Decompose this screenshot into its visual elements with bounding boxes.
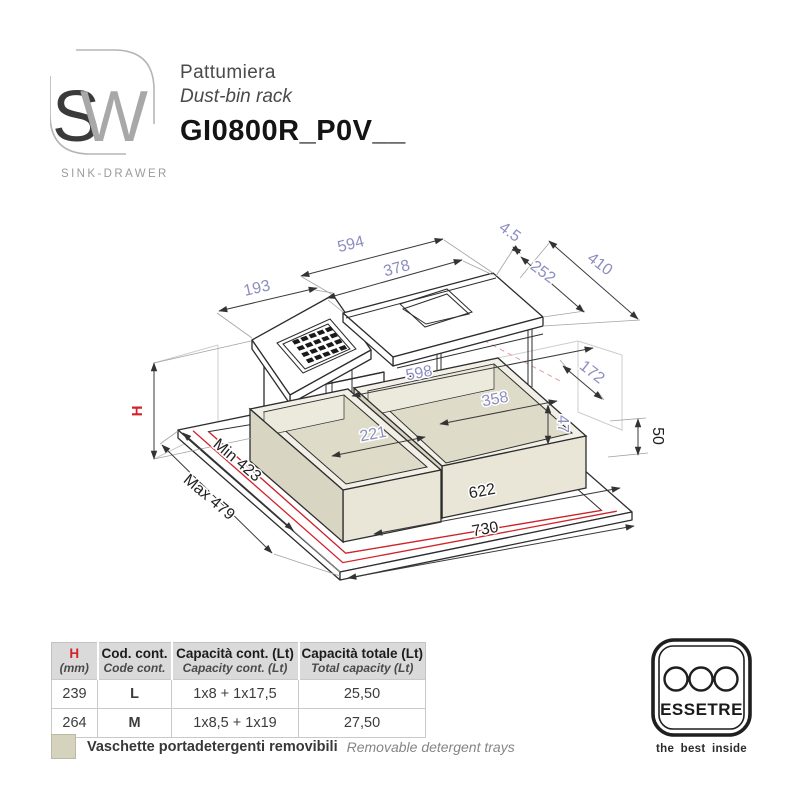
dim-top-depth: 410	[584, 250, 616, 280]
col-header-capacity-cont: Capacità cont. (Lt) Capacity cont. (Lt)	[172, 643, 299, 680]
circle-icon	[690, 668, 713, 691]
circle-icon	[715, 668, 738, 691]
spec-sheet-page: S W SINK-DRAWER Pattumiera Dust-bin rack…	[0, 0, 800, 800]
circle-icon	[665, 668, 688, 691]
dim-side-depth: 172	[576, 358, 608, 388]
dim-top-width: 594	[336, 233, 366, 256]
legend: Vaschette portadetergenti removibili Rem…	[51, 734, 515, 759]
dim-frame-height: 50	[649, 427, 666, 445]
dim-lid-width: 378	[382, 257, 412, 280]
spec-table-header-row: H (mm) Cod. cont. Code cont. Capacità co…	[52, 643, 426, 680]
essetre-logo: ESSETRE the best inside	[645, 628, 760, 758]
legend-text-english: Removable detergent trays	[347, 739, 515, 755]
col-header-code: Cod. cont. Code cont.	[98, 643, 172, 680]
cell-capacity-cont: 1x8 + 1x17,5	[172, 680, 299, 709]
col-header-capacity-total: Capacità totale (Lt) Total capacity (Lt)	[299, 643, 426, 680]
col-header-h: H (mm)	[52, 643, 98, 680]
cell-height: 239	[52, 680, 98, 709]
dim-back-lip: 4.5	[496, 219, 524, 246]
tray-color-swatch	[51, 734, 76, 759]
dim-lid-depth: 252	[527, 258, 559, 288]
dim-height: H	[129, 406, 146, 417]
table-row: 239 L 1x8 + 1x17,5 25,50	[52, 680, 426, 709]
spec-table: H (mm) Cod. cont. Code cont. Capacità co…	[51, 642, 426, 738]
dim-small-lid-width: 193	[242, 277, 272, 300]
brand-name: ESSETRE	[660, 700, 743, 719]
dim-tray-rim: 47	[554, 415, 571, 433]
legend-text-italian: Vaschette portadetergenti removibili	[87, 739, 338, 755]
cell-capacity-total: 25,50	[299, 680, 426, 709]
right-lid	[343, 273, 543, 366]
brand-tagline: the best inside	[656, 743, 747, 755]
cell-code: L	[98, 680, 172, 709]
